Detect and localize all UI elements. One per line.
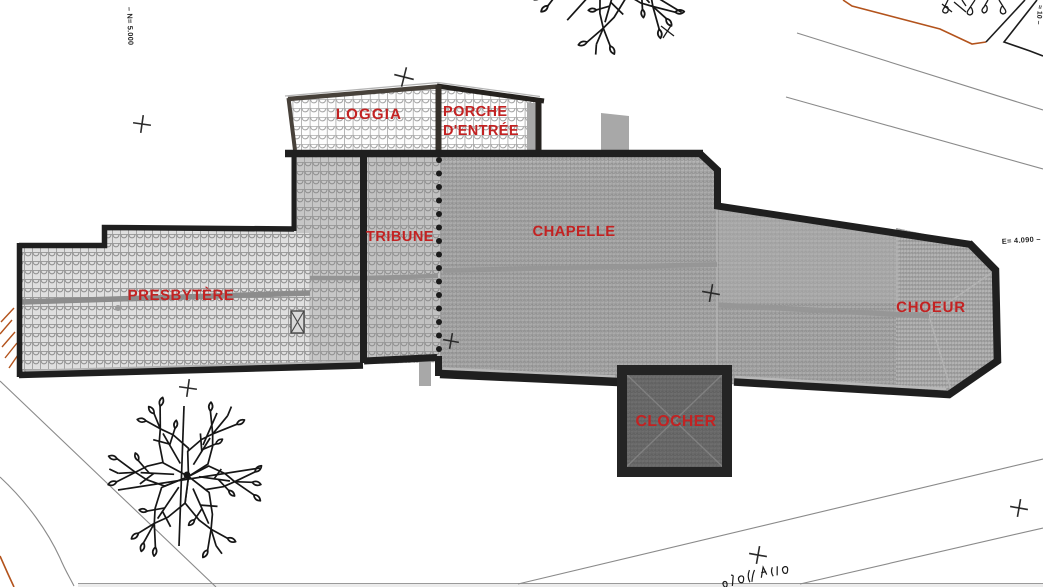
svg-text:CLOCHER: CLOCHER: [636, 413, 717, 430]
svg-text:PRESBYTÈRE: PRESBYTÈRE: [128, 286, 235, 304]
svg-text:D'ENTRÉE: D'ENTRÉE: [443, 122, 519, 139]
svg-text:≈ 10 –: ≈ 10 –: [1035, 5, 1043, 25]
svg-text:TRIBUNE: TRIBUNE: [366, 229, 434, 245]
svg-text:LOGGIA: LOGGIA: [336, 106, 402, 123]
svg-text:CHAPELLE: CHAPELLE: [533, 224, 616, 240]
svg-text:CHOEUR: CHOEUR: [896, 299, 966, 316]
svg-text:– N= 5.000: – N= 5.000: [125, 7, 135, 46]
svg-text:PORCHE: PORCHE: [443, 104, 507, 120]
